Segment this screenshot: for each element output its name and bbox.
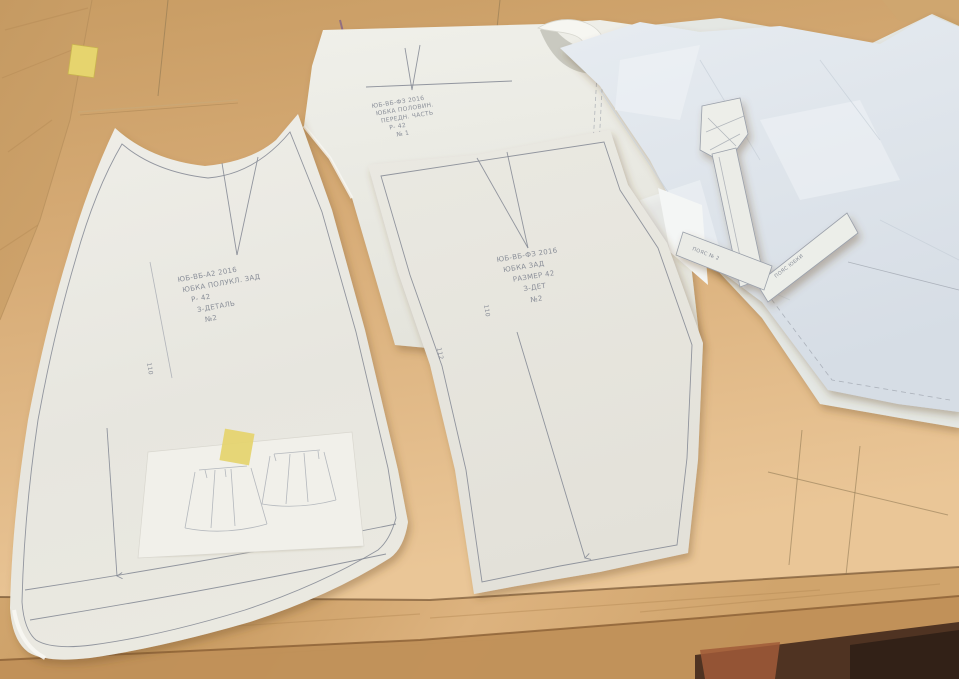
masking-tape-on-sketch	[219, 429, 254, 466]
masking-tape-top-left	[68, 44, 98, 77]
pattern-photo-scene: ЮБ-ВБ-ФЗ 2016 ЮБКА ПОЛОВИН. ПЕРЕДН. ЧАСТ…	[0, 0, 959, 679]
photo-canvas: ЮБ-ВБ-ФЗ 2016 ЮБКА ПОЛОВИН. ПЕРЕДН. ЧАСТ…	[0, 0, 959, 679]
